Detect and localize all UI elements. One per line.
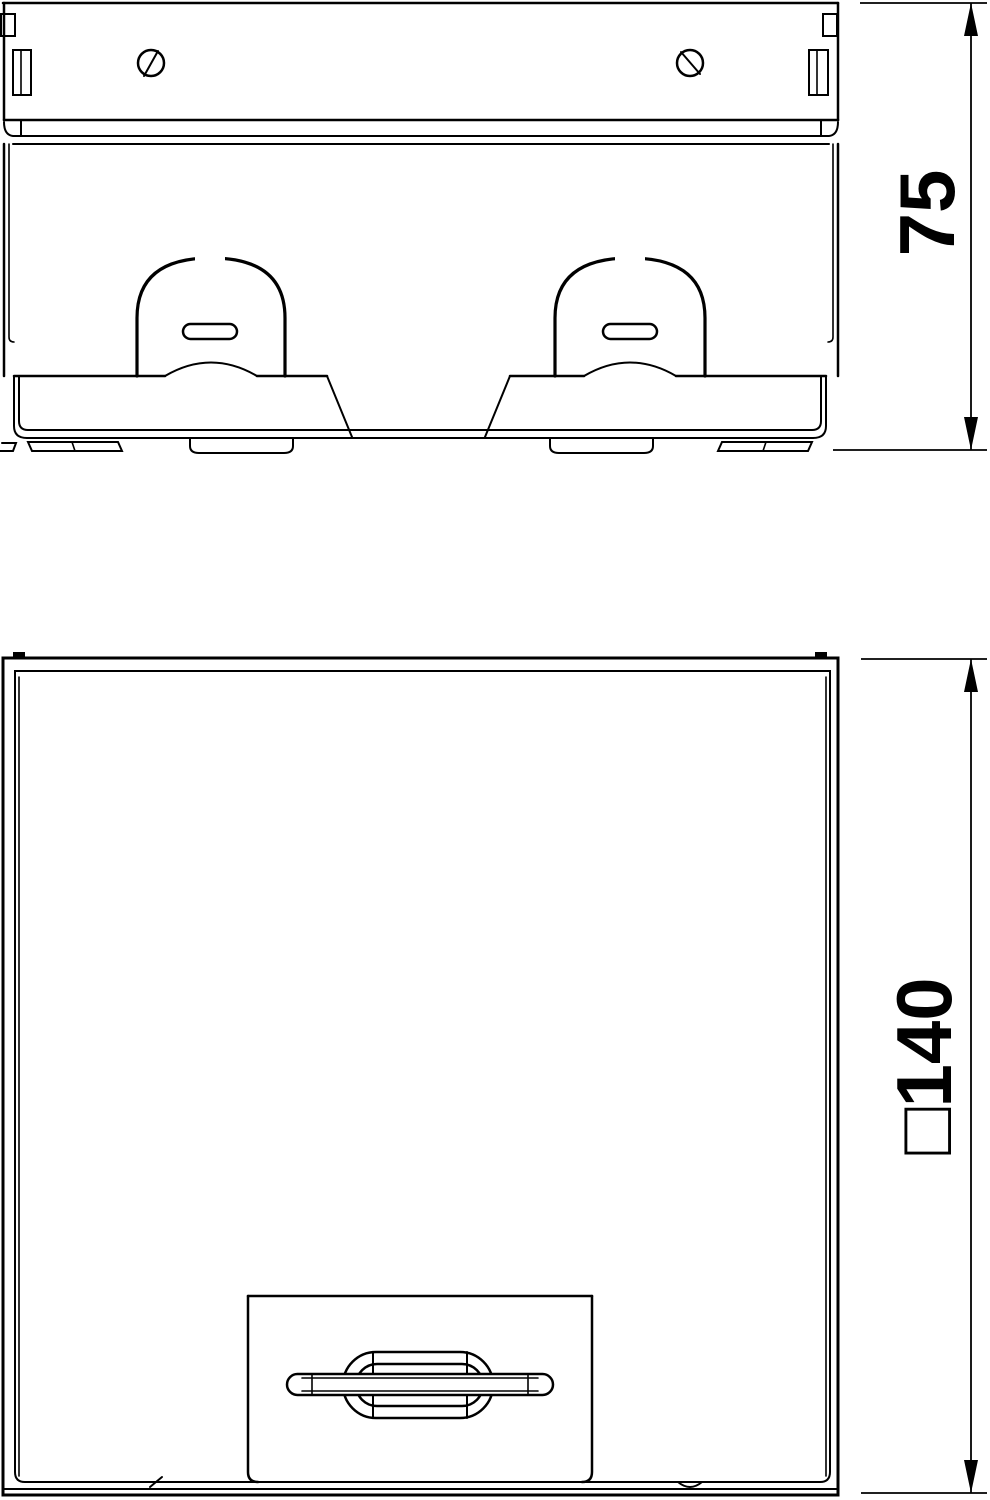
dome-slot-left: [183, 324, 237, 339]
arrowhead-down-icon: [964, 1460, 978, 1493]
plan-view: [3, 652, 838, 1495]
corner-tab-right: [823, 14, 837, 36]
dimension-label-side: □140: [880, 977, 968, 1154]
foot-clip-left: [28, 442, 122, 451]
foot-clip-right: [718, 442, 812, 451]
cable-dome-right: [555, 258, 705, 376]
height-dimension: 75: [833, 3, 987, 450]
foot-pad-left: [190, 438, 293, 453]
outer-frame: [3, 652, 838, 1495]
foot-pad-right: [550, 438, 653, 453]
dome-arch-right: [584, 363, 676, 377]
band-right-inner: [812, 376, 821, 430]
dome-slot-right: [603, 324, 657, 339]
screw-slot-right: [681, 52, 700, 74]
outer-square: [3, 658, 838, 1495]
dome-arch-left: [165, 363, 257, 377]
funnel-slant-right: [485, 376, 510, 437]
cable-dome-left: [137, 258, 285, 376]
technical-drawing-page: 75: [0, 0, 990, 1500]
band-left-inner: [19, 376, 28, 430]
plate-left-edge: [248, 1296, 258, 1482]
arrowhead-up-icon: [964, 659, 978, 692]
cup-wall-right-inner: [828, 144, 833, 342]
mounting-slot-right: [809, 50, 828, 95]
dome-outline-gap-left: [195, 248, 225, 266]
screw-slot-left: [144, 51, 158, 76]
corner-clip-right: [815, 652, 827, 659]
lifting-handle: [287, 1352, 553, 1418]
funnel-slant-left: [327, 376, 352, 437]
front-view: [0, 3, 838, 453]
foot-sliver-left: [0, 443, 16, 451]
drawing-canvas: 75: [0, 0, 990, 1500]
corner-clip-left: [13, 652, 25, 659]
lip-upper-line: [4, 122, 838, 136]
base-band: [14, 376, 826, 438]
screw-left: [138, 50, 164, 76]
cover-lip: [4, 122, 838, 144]
plate-right-edge: [582, 1296, 592, 1482]
arrowhead-down-icon: [964, 417, 978, 450]
mounting-slot-left: [13, 50, 31, 95]
mounting-flange: [1, 3, 838, 135]
arrowhead-up-icon: [964, 3, 978, 36]
dome-outline-gap-right: [615, 248, 645, 266]
side-dimension: □140: [861, 659, 987, 1493]
screw-right: [677, 50, 703, 76]
cup-wall-left-inner: [9, 144, 14, 342]
inner-square: [15, 671, 830, 1482]
dimension-label-height: 75: [883, 170, 971, 257]
device-cup: [4, 144, 838, 376]
handle-bar: [287, 1374, 553, 1395]
feet: [0, 438, 812, 453]
